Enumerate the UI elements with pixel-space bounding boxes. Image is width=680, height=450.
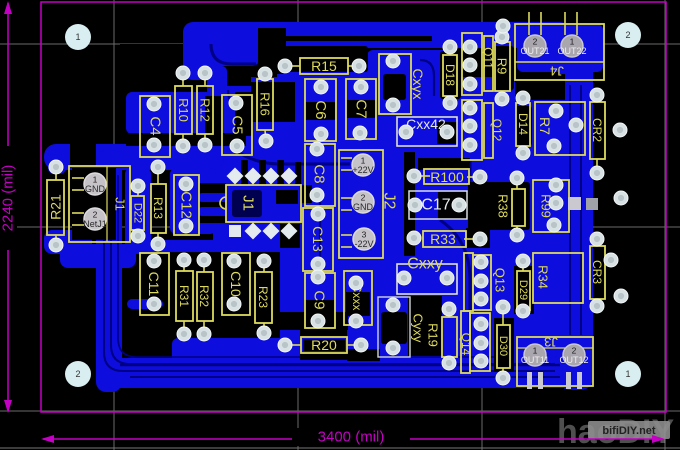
svg-text:+22V: +22V [352, 165, 373, 175]
svg-text:Q13: Q13 [493, 268, 508, 293]
svg-text:R20: R20 [311, 337, 337, 353]
svg-text:R13: R13 [151, 197, 165, 219]
svg-text:OUT22: OUT22 [557, 46, 586, 56]
svg-text:1: 1 [93, 175, 98, 185]
svg-text:2240 (mil): 2240 (mil) [0, 165, 17, 232]
svg-text:R34: R34 [536, 265, 551, 289]
svg-text:C9: C9 [311, 290, 328, 309]
svg-text:2: 2 [625, 30, 630, 40]
svg-text:C4: C4 [147, 116, 164, 135]
svg-text:J4: J4 [550, 64, 564, 79]
svg-text:J1: J1 [240, 195, 257, 211]
svg-text:Cyxy: Cyxy [411, 314, 426, 343]
svg-text:Cxxy: Cxxy [407, 256, 443, 273]
svg-text:R33: R33 [430, 231, 456, 247]
svg-text:D29: D29 [517, 280, 529, 300]
svg-text:D18: D18 [443, 64, 457, 86]
svg-text:2: 2 [533, 37, 538, 47]
svg-text:R31: R31 [177, 285, 191, 307]
svg-text:R23: R23 [256, 286, 270, 308]
svg-text:J3: J3 [544, 335, 558, 350]
svg-text:J1: J1 [113, 197, 128, 211]
svg-text:R10: R10 [176, 98, 191, 122]
svg-text:bifiDIY.net: bifiDIY.net [602, 425, 656, 437]
svg-text:2: 2 [361, 193, 366, 203]
svg-text:3: 3 [362, 230, 367, 240]
svg-text:D14: D14 [516, 113, 530, 135]
svg-text:OUT21: OUT21 [520, 46, 549, 56]
svg-text:CR3: CR3 [590, 260, 604, 284]
svg-text:1: 1 [570, 37, 575, 47]
svg-text:-22V: -22V [354, 239, 373, 249]
svg-text:2: 2 [572, 346, 577, 356]
svg-text:J2: J2 [381, 193, 398, 210]
svg-text:C17: C17 [421, 197, 450, 214]
svg-text:R32: R32 [197, 285, 211, 307]
svg-text:R16: R16 [258, 92, 273, 116]
svg-text:C8: C8 [311, 164, 328, 183]
svg-text:C13: C13 [310, 226, 326, 252]
svg-text:R21: R21 [48, 194, 64, 220]
svg-text:Cxyx: Cxyx [410, 68, 426, 99]
svg-text:C6: C6 [312, 100, 329, 119]
svg-text:1: 1 [75, 32, 80, 42]
svg-text:C10: C10 [228, 271, 244, 297]
svg-text:Q14: Q14 [459, 333, 473, 356]
svg-text:Q11: Q11 [481, 47, 495, 69]
svg-text:R12: R12 [198, 98, 213, 122]
svg-text:NetJ1: NetJ1 [83, 219, 107, 229]
svg-text:1: 1 [533, 346, 538, 356]
svg-text:Q12: Q12 [490, 119, 504, 142]
svg-text:R9: R9 [495, 58, 510, 75]
svg-text:C11: C11 [146, 272, 162, 297]
svg-text:R100: R100 [430, 169, 464, 185]
svg-text:R15: R15 [311, 58, 337, 74]
svg-text:C5: C5 [229, 115, 246, 134]
svg-text:1: 1 [361, 156, 366, 166]
svg-text:2: 2 [93, 210, 98, 220]
svg-text:R7: R7 [537, 117, 553, 135]
svg-text:R38: R38 [496, 194, 511, 218]
svg-text:GND: GND [85, 184, 106, 194]
svg-text:1: 1 [625, 369, 630, 379]
svg-text:OUT11: OUT11 [521, 355, 549, 365]
svg-text:2: 2 [75, 369, 80, 379]
svg-text:D22: D22 [132, 203, 144, 223]
svg-text:C7: C7 [353, 99, 370, 118]
svg-text:D30: D30 [497, 336, 509, 356]
svg-text:R19: R19 [426, 323, 441, 347]
svg-text:CR2: CR2 [590, 118, 604, 142]
svg-text:GND: GND [353, 202, 374, 212]
svg-text:OUT12: OUT12 [559, 355, 588, 365]
svg-text:C12: C12 [178, 191, 195, 219]
svg-text:3400 (mil): 3400 (mil) [318, 429, 385, 446]
